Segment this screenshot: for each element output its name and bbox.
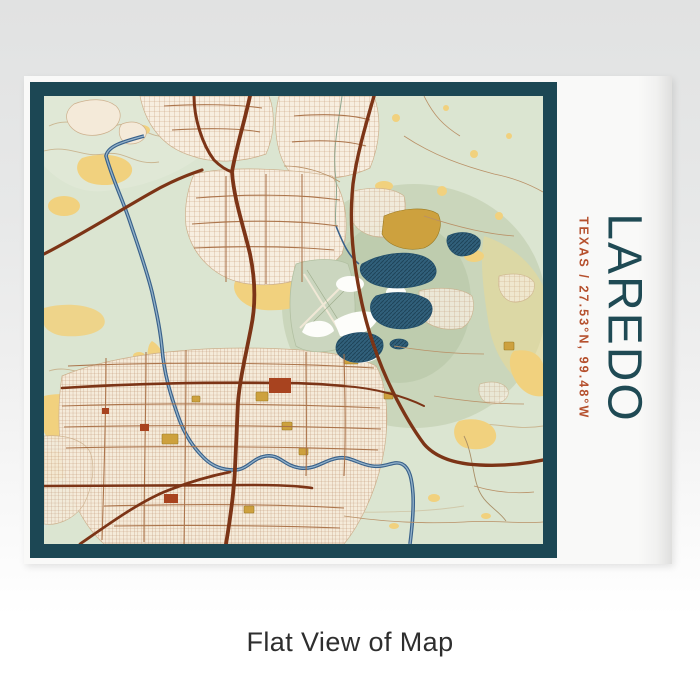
map-print-card[interactable]: LAREDO TEXAS / 27.53°N, 99.48°W bbox=[24, 76, 672, 564]
print-title: LAREDO bbox=[600, 198, 648, 438]
product-photo: LAREDO TEXAS / 27.53°N, 99.48°W Flat Vie… bbox=[0, 0, 700, 700]
print-title-block: LAREDO TEXAS / 27.53°N, 99.48°W bbox=[577, 198, 648, 438]
view-caption: Flat View of Map bbox=[0, 627, 700, 658]
laredo-city-map bbox=[44, 96, 543, 544]
map-frame bbox=[30, 82, 557, 558]
print-subtitle: TEXAS / 27.53°N, 99.48°W bbox=[577, 198, 591, 438]
